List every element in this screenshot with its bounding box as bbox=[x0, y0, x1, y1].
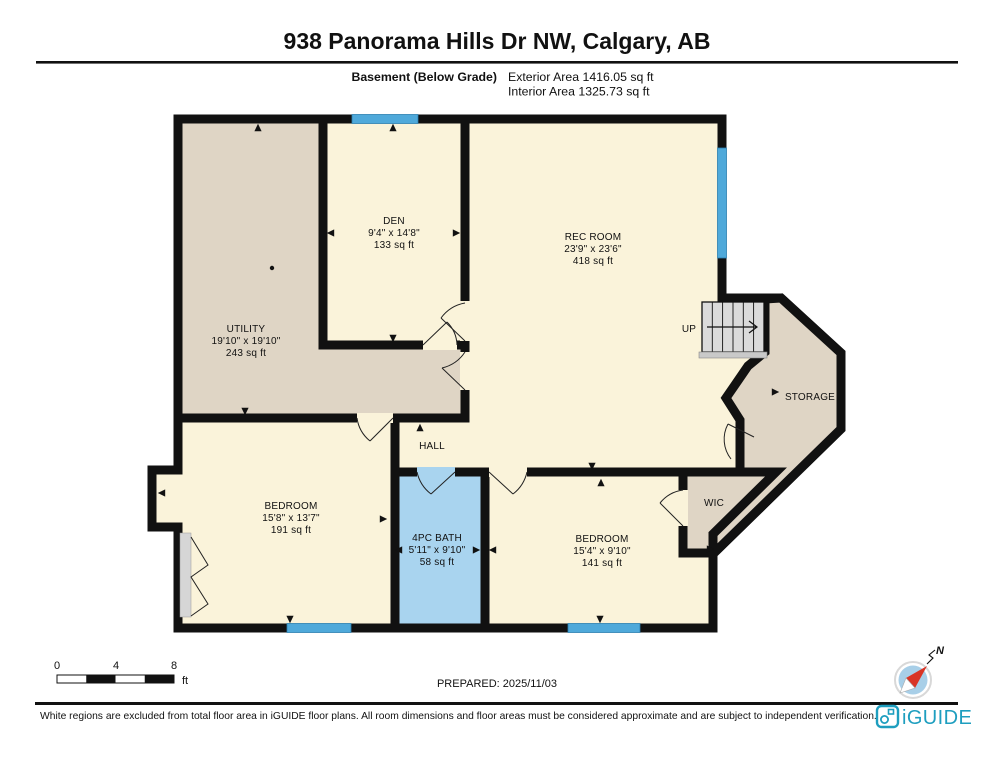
scale-tick-0: 0 bbox=[54, 660, 60, 672]
north-label: N bbox=[936, 645, 945, 657]
den-area: 133 sq ft bbox=[374, 240, 414, 251]
scale-tick-8: 8 bbox=[171, 660, 177, 672]
page-title: 938 Panorama Hills Dr NW, Calgary, AB bbox=[284, 28, 711, 54]
scale-bar-segment bbox=[86, 675, 115, 683]
prepared-date: PREPARED: 2025/11/03 bbox=[437, 678, 557, 690]
rec-room-area: 418 sq ft bbox=[573, 256, 613, 267]
window bbox=[568, 624, 640, 633]
door-gap bbox=[423, 340, 457, 350]
rec-room-name: REC ROOM bbox=[565, 232, 622, 243]
window bbox=[352, 115, 418, 124]
iguide-logo-notch bbox=[889, 710, 894, 715]
den-dims: 9'4" x 14'8" bbox=[368, 228, 420, 239]
bath-dims: 5'11" x 9'10" bbox=[409, 545, 466, 556]
window bbox=[287, 624, 351, 633]
stair-landing bbox=[699, 352, 767, 358]
scale-bar-segment bbox=[145, 675, 174, 683]
door-gap bbox=[460, 301, 470, 341]
rec-room-dims: 23'9" x 23'6" bbox=[564, 244, 622, 255]
exterior-area: Exterior Area 1416.05 sq ft bbox=[508, 70, 654, 84]
utility-area: 243 sq ft bbox=[226, 348, 266, 359]
bedroom-right-area: 141 sq ft bbox=[582, 558, 622, 569]
scale-tick-4: 4 bbox=[113, 660, 119, 672]
bedroom-left-area: 191 sq ft bbox=[271, 525, 311, 536]
header: 938 Panorama Hills Dr NW, Calgary, AB Ba… bbox=[36, 28, 958, 99]
door-gap bbox=[357, 413, 393, 423]
iguide-logo: iGUIDE bbox=[877, 706, 972, 729]
iguide-brand-text: iGUIDE bbox=[902, 707, 972, 729]
stairs-up-label: UP bbox=[682, 324, 696, 335]
bedroom-right-name: BEDROOM bbox=[575, 534, 628, 545]
utility-name: UTILITY bbox=[227, 324, 266, 335]
bath-area: 58 sq ft bbox=[420, 557, 454, 568]
floor-plan: UTILITY 19'10" x 19'10" 243 sq ft DEN 9'… bbox=[152, 115, 841, 633]
bath-name: 4PC BATH bbox=[412, 533, 462, 544]
title-divider bbox=[36, 61, 958, 64]
footer-divider bbox=[35, 702, 958, 705]
storage-name: STORAGE bbox=[785, 392, 835, 403]
utility-dims: 19'10" x 19'10" bbox=[212, 336, 281, 347]
door-gap bbox=[489, 467, 527, 477]
door-gap bbox=[417, 467, 455, 477]
hall-name: HALL bbox=[419, 441, 445, 452]
footer: White regions are excluded from total fl… bbox=[35, 702, 972, 729]
window bbox=[718, 148, 727, 258]
compass: N bbox=[895, 645, 945, 698]
door-gap bbox=[460, 352, 470, 390]
north-squiggle bbox=[927, 650, 935, 664]
den-name: DEN bbox=[383, 216, 405, 227]
scale-bar: 0 4 8 ft bbox=[54, 660, 188, 687]
iguide-logo-lens bbox=[881, 716, 888, 723]
door-gap bbox=[678, 490, 688, 526]
interior-area: Interior Area 1325.73 sq ft bbox=[508, 85, 650, 99]
bedroom-left-dims: 15'8" x 13'7" bbox=[262, 513, 320, 524]
floor-plan-page: 938 Panorama Hills Dr NW, Calgary, AB Ba… bbox=[0, 0, 993, 768]
bedroom-right-dims: 15'4" x 9'10" bbox=[573, 546, 631, 557]
floor-plan-canvas: 938 Panorama Hills Dr NW, Calgary, AB Ba… bbox=[0, 0, 993, 768]
scale-unit: ft bbox=[182, 675, 188, 687]
floor-label: Basement (Below Grade) bbox=[351, 70, 497, 84]
wic-name: WIC bbox=[704, 498, 724, 509]
closet-track bbox=[180, 533, 191, 617]
bedroom-left-name: BEDROOM bbox=[264, 501, 317, 512]
floor-drain-dot bbox=[270, 266, 274, 270]
disclaimer-text: White regions are excluded from total fl… bbox=[40, 711, 877, 722]
